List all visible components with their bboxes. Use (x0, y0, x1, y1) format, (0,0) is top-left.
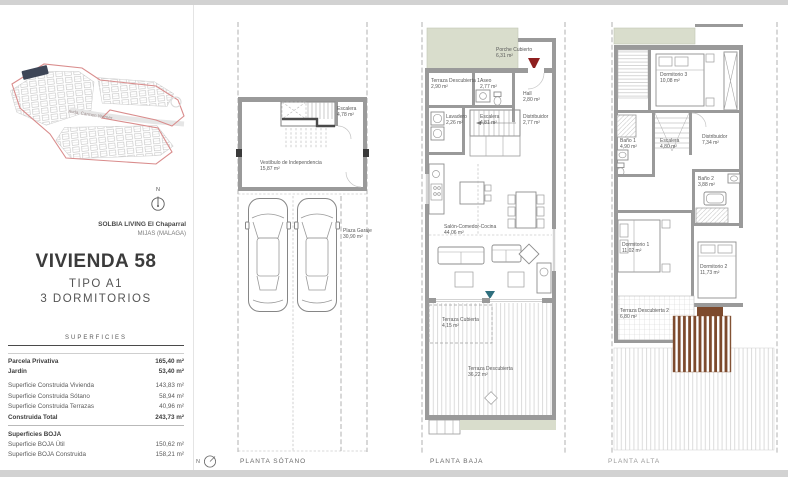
unit-title: VIVIENDA 58 (0, 251, 192, 273)
unit-type: TIPO A1 (0, 278, 192, 290)
surface-label: Superficie Construida Terrazas (8, 403, 94, 410)
room-label-dormitorio1: Dormitorio 111,02 m² (622, 242, 649, 254)
surface-value: 143,83 m² (156, 382, 184, 389)
room-label-dormitorio3: Dormitorio 310,08 m² (660, 72, 687, 84)
sofa-icon (438, 244, 551, 293)
footer: N PLANTA SÓTANO PLANTA BAJA PLANTA ALTA (0, 452, 788, 470)
footer-compass: N (196, 454, 218, 469)
room-label-plaza-garaje: Plaza Garaje30,90 m² (343, 228, 372, 240)
room-label-distribuidor: Distribuidor2,77 m² (523, 114, 548, 126)
dining-table-icon (508, 192, 544, 228)
site-map: Avda. Carmen Werner (6, 60, 188, 180)
surface-row: Superficie BOJA Útil 150,62 m² (8, 441, 184, 448)
project-block: SOLBIA LIVING El Chaparral MIJAS (MALAGA… (28, 221, 186, 238)
unit-bedrooms: 3 DORMITORIOS (0, 293, 192, 305)
plan-title-sotano: PLANTA SÓTANO (240, 458, 306, 465)
terrace-access-marker-icon (485, 291, 495, 299)
garden-strip (460, 420, 556, 430)
shower-icon (696, 208, 728, 223)
compass-north-label: N (196, 459, 200, 465)
room-label-bano1: Baño 14,90 m² (620, 138, 637, 150)
floorplan-alta-drawing (604, 14, 784, 461)
porch-roof-area (614, 28, 695, 44)
room-label-terraza-desc2: Terraza Descubierta 26,80 m² (620, 308, 669, 320)
surfaces-separator (8, 425, 184, 426)
room-label-terraza-desc1: Terraza Descubierta 12,90 m² (431, 78, 480, 90)
plan-title-alta: PLANTA ALTA (608, 458, 660, 465)
sidebar-compass: N (142, 187, 174, 217)
surface-value: 53,40 m² (159, 368, 184, 375)
car-icon (246, 199, 291, 312)
project-name: SOLBIA LIVING El Chaparral (28, 221, 186, 230)
surface-label: Superficie Construida Sótano (8, 393, 90, 400)
room-label-aseo: Aseo2,77 m² (480, 78, 497, 90)
sink-icon (728, 174, 740, 183)
room-label-lavadero: Lavadero2,26 m² (446, 114, 467, 126)
surface-row: Construida Total 243,73 m² (8, 414, 184, 421)
page-frame-bottom (0, 470, 788, 477)
plan-sheet: Avda. Carmen Werner N SOLBIA LIVING El C… (0, 0, 788, 477)
kitchen-island-icon (460, 182, 491, 204)
wardrobe-icon (724, 52, 737, 110)
sink-icon (617, 150, 628, 160)
car-icon (295, 199, 340, 312)
surfaces-rule-light (8, 353, 184, 354)
surfaces-title: SUPERFICIES (8, 335, 184, 341)
room-label-terraza-descubierta: Terraza Descubierta36,22 m² (468, 366, 513, 378)
room-label-bano2: Baño 23,88 m² (698, 176, 715, 188)
room-label-vestibulo: Vestíbulo de Independencia15,87 m² (260, 160, 322, 172)
washer-icon (431, 112, 444, 140)
surfaces-table: SUPERFICIES Parcela Privativa 165,40 m² … (8, 335, 184, 462)
floorplan-sotano: Escalera4,78 m² Vestíbulo de Independenc… (222, 14, 392, 461)
room-label-escalera: Escalera4,78 m² (337, 106, 356, 118)
surface-row: Superficie Construida Vivienda 143,83 m² (8, 382, 184, 389)
compass-icon (149, 194, 167, 212)
room-label-dormitorio2: Dormitorio 211,73 m² (700, 264, 727, 276)
room-label-escalera: Escalera4,80 m² (660, 138, 679, 150)
room-label-hall: Hall2,80 m² (523, 91, 540, 103)
toilet-icon (476, 90, 501, 105)
room-label-terraza-cubierta: Terraza Cubierta4,15 m² (442, 317, 479, 329)
surface-value: 165,40 m² (155, 358, 184, 365)
surface-section-label: Superficies BOJA (8, 431, 61, 438)
surface-value: 150,62 m² (156, 441, 184, 448)
room-label-distribuidor: Distribuidor7,34 m² (702, 134, 727, 146)
surface-row: Superficie Construida Sótano 58,94 m² (8, 393, 184, 400)
room-label-porche: Porche Cubierto6,31 m² (496, 47, 532, 59)
surface-value: 58,94 m² (159, 393, 184, 400)
stair-void (618, 50, 648, 98)
surface-row: Parcela Privativa 165,40 m² (8, 358, 184, 365)
surface-label: Superficie Construida Vivienda (8, 382, 94, 389)
surface-row: Superficie Construida Terrazas 40,96 m² (8, 403, 184, 410)
surface-row: Superficies BOJA (8, 431, 184, 438)
bathtub-icon (704, 192, 726, 205)
sidebar-divider (193, 5, 194, 470)
project-location: MIJAS (MALAGA) (28, 230, 186, 238)
surface-label: Parcela Privativa (8, 358, 58, 365)
surface-row: Jardín 53,40 m² (8, 368, 184, 375)
surface-value: 243,73 m² (155, 414, 184, 421)
unit-block: VIVIENDA 58 TIPO A1 3 DORMITORIOS (0, 251, 192, 305)
shower-icon (617, 115, 636, 137)
site-map-drawing (6, 60, 188, 178)
surface-label: Construida Total (8, 414, 58, 421)
kitchen-counter-icon (429, 164, 444, 214)
pergola-icon (673, 307, 731, 372)
floorplan-alta: Dormitorio 310,08 m² Baño 14,90 m² Escal… (604, 14, 784, 461)
floorplan-baja: Porche Cubierto6,31 m² Terraza Descubier… (416, 14, 576, 461)
compass-north-label: N (142, 187, 174, 193)
surface-value: 40,96 m² (159, 403, 184, 410)
room-label-escalera: Escalera4,81 m² (480, 114, 499, 126)
compass-icon (202, 454, 218, 469)
surface-label: Jardín (8, 368, 27, 375)
sidebar: Avda. Carmen Werner N SOLBIA LIVING El C… (0, 5, 192, 470)
surfaces-rule (8, 345, 184, 346)
surface-label: Superficie BOJA Útil (8, 441, 65, 448)
room-label-salon: Salón-Comedor-Cocina44,06 m² (444, 224, 496, 236)
plan-title-baja: PLANTA BAJA (430, 458, 484, 465)
garden-steps-icon (429, 420, 460, 434)
